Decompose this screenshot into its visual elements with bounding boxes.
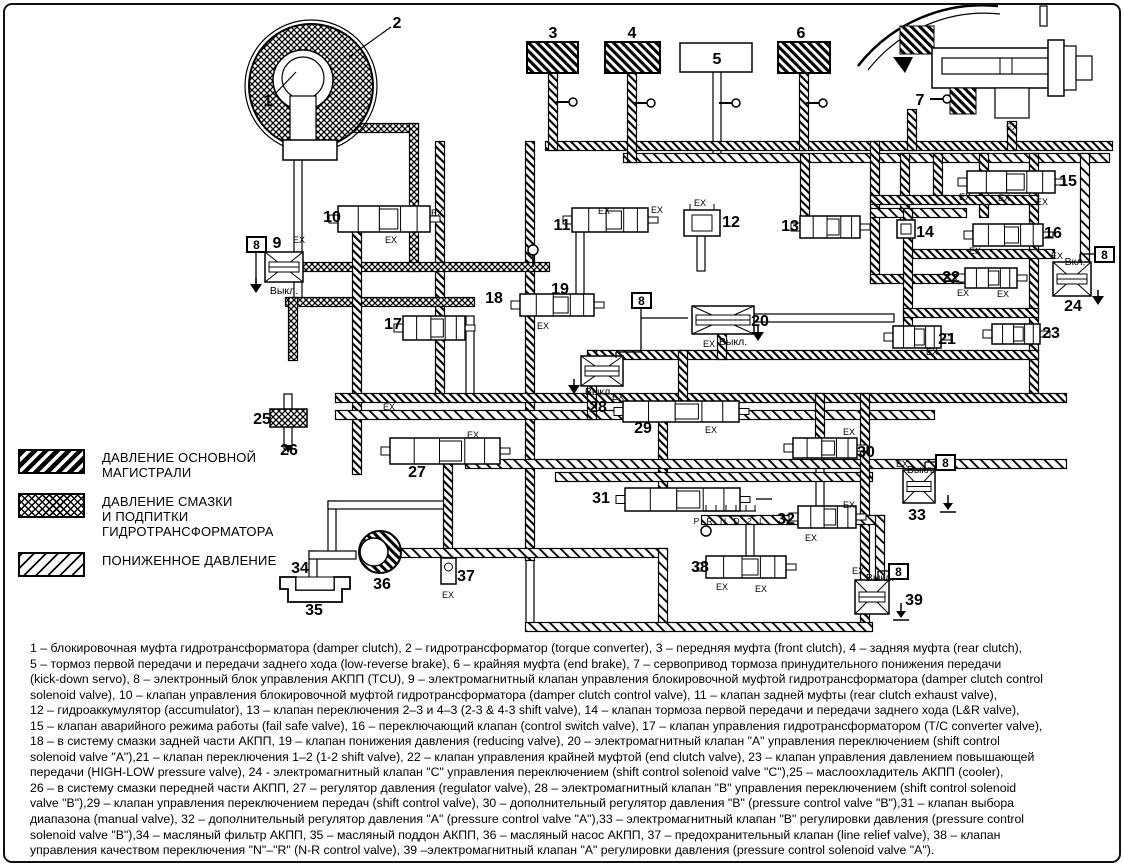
tcu-box: 8 [889,564,908,579]
caption-line: передачи (HIGH-LOW pressure valve), 24 -… [30,765,1110,781]
kickdown-servo [858,5,1092,118]
legend-swatch-lube [18,493,85,518]
callout-15: 15 [1059,173,1077,190]
state-label: Выкл. [585,386,613,398]
ex-label: EX [843,500,855,510]
range-indicator: P R N D 2 L [694,516,767,526]
ex-label: EX [959,192,971,202]
pipe-segment [444,460,453,563]
ex-label: EX [843,427,855,437]
pipe-segment [526,623,873,632]
valve-glyph [563,208,658,232]
accumulator [684,204,720,236]
legend-swatch-low [18,552,85,577]
legend-item-lube: ДАВЛЕНИЕ СМАЗКИ И ПОДПИТКИ ГИДРОТРАНСФОР… [18,493,308,539]
svg-text:8: 8 [942,456,949,470]
ground-symbol [940,495,956,512]
callout-35: 35 [305,602,323,619]
legend: ДАВЛЕНИЕ ОСНОВНОЙ МАГИСТРАЛИДАВЛЕНИЕ СМА… [18,449,308,590]
pipe-segment [659,549,668,632]
valve-glyph [329,206,440,232]
caption-line: 12 – гидроаккумулятор (accumulator), 13 … [30,703,1110,719]
legend-label: ДАВЛЕНИЕ ОСНОВНОЙ МАГИСТРАЛИ [102,449,256,480]
oil-pump [359,531,401,573]
test-pin [556,98,577,106]
state-label: Выкл. [907,464,935,476]
pipe-segment [588,351,1039,360]
ex-label: EX [1006,122,1018,132]
caption-line: valve "В"),29 – клапан управления перекл… [30,796,1110,812]
callout-7: 7 [916,92,925,109]
callout-2: 2 [393,15,402,32]
callout-25: 25 [253,411,271,428]
valve-glyph [697,556,796,578]
ex-label: EX [442,590,454,600]
solenoid-glyph [692,306,754,334]
pipe-segment [396,549,668,558]
tcu-box: 8 [936,455,955,470]
callout-12: 12 [722,214,740,231]
pipe-segment [526,142,535,561]
caption-line: solenoid valve "A"),21 – клапан переключ… [30,750,1110,766]
pipe-segment [309,551,356,559]
legend-label: ПОНИЖЕННОЕ ДАВЛЕНИЕ [102,552,276,568]
schematic-page: 1234567910111213141516171819202122232425… [0,0,1124,866]
callout-36: 36 [373,576,391,593]
legend-swatch-main [18,449,85,474]
callout-9: 9 [273,235,282,252]
pipe-segment [908,110,917,151]
pipe-segment [576,228,584,298]
valve-glyph [791,216,870,238]
pipe-segment [816,394,825,443]
callout-16: 16 [1044,225,1062,242]
valve-glyph [381,438,510,464]
cooler [270,409,307,427]
ex-label: EX [467,430,479,440]
pipe-segment [801,154,810,221]
callout-1: 1 [264,93,273,110]
callout-39: 39 [905,592,923,609]
pipe-segment [679,351,688,406]
valve-glyph [983,324,1050,344]
pipe-segment [556,473,873,482]
ex-label: EX [1051,251,1063,261]
figure-caption: 1 – блокировочная муфта гидротрансформат… [30,641,1110,859]
caption-line: 15 – клапан аварийного режима работы (fa… [30,719,1110,735]
ex-label: EX [537,321,549,331]
callout-30: 30 [857,444,875,461]
tcu-box: 8 [247,237,266,252]
callout-20: 20 [751,313,769,330]
tcu-box: 8 [1095,247,1114,262]
ex-label: EX [755,584,767,594]
ex-label: EX [293,235,305,245]
pipe-segment [871,196,1039,205]
callout-11: 11 [554,217,571,234]
valve-glyph [958,171,1065,193]
callout-23: 23 [1042,325,1060,342]
callout-28: 28 [589,399,607,416]
callout-6: 6 [797,25,806,42]
pipe-segment [751,314,894,322]
callout-24: 24 [1064,298,1082,315]
off-arrow [1092,290,1104,305]
ex-label: EX [612,392,624,402]
state-label: Выкл. [719,336,747,348]
legend-item-low: ПОНИЖЕННОЕ ДАВЛЕНИЕ [18,552,308,577]
callout-14: 14 [916,224,934,241]
front-clutch-box [527,42,578,73]
lr-valve [897,220,915,238]
ex-label: EX [805,533,817,543]
callout-19: 19 [551,281,569,298]
caption-line: управления качеством переключения "N"–"R… [30,843,1110,859]
callout-5: 5 [713,51,722,68]
off-arrow [250,278,262,293]
line-relief-valve [441,558,456,584]
valve-glyph [614,401,749,422]
caption-line: 26 – в систему смазки передней части АКП… [30,781,1110,797]
torque-converter [245,20,391,160]
callout-18: 18 [485,290,503,307]
pipe-segment [466,460,1067,469]
caption-line: диапазона (manual valve), 32 – дополните… [30,812,1110,828]
ex-label: EX [431,208,443,218]
ex-label: EX [703,339,715,349]
ex-label: EX [1036,197,1048,207]
test-pin [719,99,740,107]
ex-label: EX [651,205,663,215]
solenoid-glyph [581,356,623,386]
callout-17: 17 [384,316,402,333]
end-brake-box [778,42,830,73]
pipe-segment [286,298,475,307]
caption-line: 18 – в систему смазки задней части АКПП,… [30,734,1110,750]
pipe-segment [871,209,967,218]
solenoid-glyph [265,252,303,282]
legend-item-main: ДАВЛЕНИЕ ОСНОВНОЙ МАГИСТРАЛИ [18,449,308,480]
pipe-segment [1081,154,1090,267]
valve-glyph [964,224,1053,246]
callout-37: 37 [457,568,475,585]
pipe-segment [289,298,298,361]
solenoid-glyph [855,580,889,614]
callout-21: 21 [938,331,956,348]
state-label: Вкл. [1065,256,1086,268]
pipe-segment [328,501,447,509]
pipe-segment [549,69,558,151]
ex-label: EX [383,402,395,412]
svg-text:8: 8 [638,294,645,308]
svg-text:8: 8 [253,238,260,252]
pipe-segment [299,263,550,272]
ex-label: EX [852,566,864,576]
ex-label: EX [385,235,397,245]
pipe-segment [294,156,302,306]
pipe-segment [697,232,705,271]
test-pin [930,95,951,103]
valve-glyph [956,268,1027,288]
svg-text:8: 8 [895,565,902,579]
valve-glyph [784,438,867,458]
pipe-segment [353,228,362,475]
ex-label: EX [969,246,981,256]
ex-label: EX [716,582,728,592]
valve-glyph [394,316,475,340]
ex-label: EX [998,193,1010,203]
callout-3: 3 [549,25,558,42]
caption-line: 1 – блокировочная муфта гидротрансформат… [30,641,1110,657]
state-label: Выкл. [270,285,298,297]
pipe-segment [410,124,419,272]
callout-32: 32 [777,511,795,528]
off-arrow [568,379,580,394]
check-ball [701,526,711,536]
test-pin [634,99,655,107]
callout-33: 33 [908,507,926,524]
pipe-segment [628,69,637,163]
svg-text:8: 8 [1101,248,1108,262]
callout-13: 13 [781,218,799,235]
pipe-segment [800,69,809,151]
tcu-box: 8 [632,293,651,308]
test-pin [806,99,827,107]
ex-label: EX [694,198,706,208]
caption-line: (kick-down servo), 8 – электронный блок … [30,672,1110,688]
callout-31: 31 [592,490,610,507]
pipe-segment [904,309,1039,318]
callout-22: 22 [942,269,960,286]
rear-clutch-box [605,42,660,73]
valve-glyph [616,488,750,511]
caption-line: solenoid valve), 10 – клапан управления … [30,688,1110,704]
caption-line: solenoid valve "В"),34 – масляный фильтр… [30,828,1110,844]
ex-label: EX [997,289,1009,299]
pipe-segment [526,552,534,631]
callout-10: 10 [323,209,341,226]
ex-label: EX [957,288,969,298]
ex-label: EX [926,347,938,357]
callout-4: 4 [628,25,637,42]
caption-line: 5 – тормоз первой передачи и передачи за… [30,657,1110,673]
ex-label: EX [598,206,610,216]
callout-29: 29 [634,420,652,437]
callout-38: 38 [691,559,709,576]
callout-27: 27 [408,464,426,481]
ex-label: EX [705,425,717,435]
legend-label: ДАВЛЕНИЕ СМАЗКИ И ПОДПИТКИ ГИДРОТРАНСФОР… [102,493,274,539]
